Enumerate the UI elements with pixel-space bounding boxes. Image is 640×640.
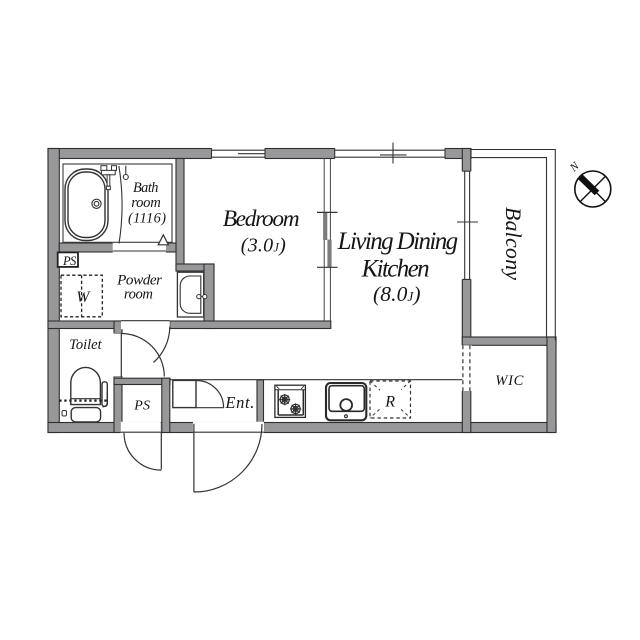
svg-text:PS: PS xyxy=(62,254,77,268)
svg-text:room: room xyxy=(124,287,153,303)
svg-text:(1116): (1116) xyxy=(128,211,166,227)
svg-text:room: room xyxy=(131,195,161,211)
svg-text:Living Dining: Living Dining xyxy=(337,228,459,255)
svg-text:Kitchen: Kitchen xyxy=(361,256,430,283)
svg-text:PS: PS xyxy=(133,399,150,414)
svg-text:Balcony: Balcony xyxy=(501,207,525,280)
svg-text:Bath: Bath xyxy=(133,180,159,196)
svg-text:Bedroom: Bedroom xyxy=(223,206,300,232)
svg-text:(3.0J): (3.0J) xyxy=(241,235,286,257)
svg-text:Toilet: Toilet xyxy=(69,337,102,353)
svg-text:WIC: WIC xyxy=(495,373,523,389)
svg-text:W: W xyxy=(76,289,91,306)
svg-text:Ent.: Ent. xyxy=(224,393,254,412)
svg-text:R: R xyxy=(384,394,395,411)
svg-text:(8.0J): (8.0J) xyxy=(373,282,421,306)
